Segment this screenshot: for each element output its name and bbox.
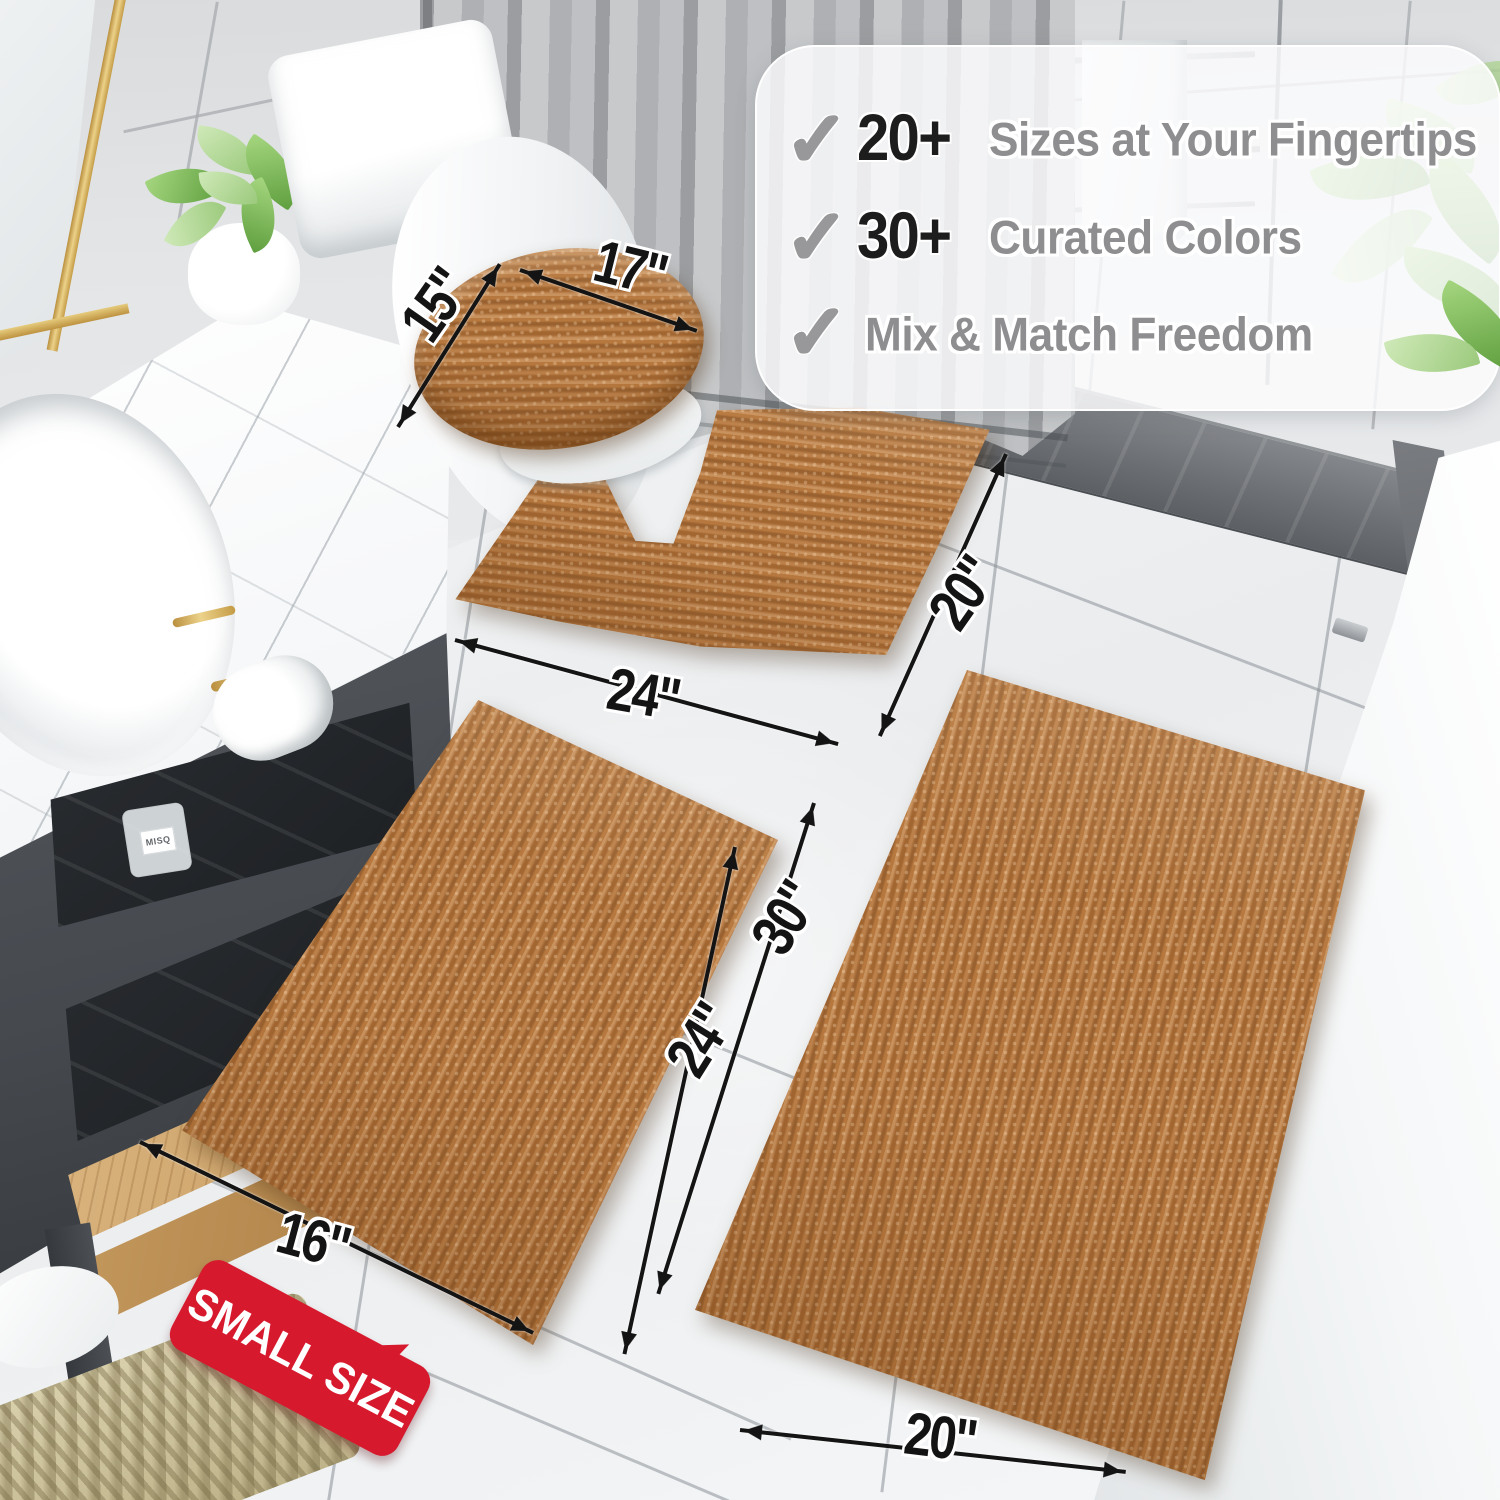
feature-stat: 20+ [857, 99, 950, 175]
bottle-label: MISQ [139, 826, 176, 855]
feature-stat: 30+ [857, 197, 950, 273]
plant-pot [188, 223, 300, 325]
product-scene: MISQ 15" 17" 24" 20" 16" 24" 30" 20" ✓ [0, 0, 1500, 1500]
check-icon: ✓ [785, 95, 849, 184]
feature-label: Mix & Match Freedom [865, 307, 1313, 362]
check-icon: ✓ [785, 288, 849, 377]
dimension-label-contour-width: 24" [602, 654, 684, 734]
large-rug-wrap [695, 670, 1365, 1500]
dimension-label-large-width: 20" [901, 1398, 980, 1475]
feature-label: Sizes at Your Fingertips [989, 112, 1477, 167]
large-rug [695, 670, 1365, 1500]
feature-label: Curated Colors [989, 210, 1302, 265]
check-icon: ✓ [785, 193, 849, 282]
